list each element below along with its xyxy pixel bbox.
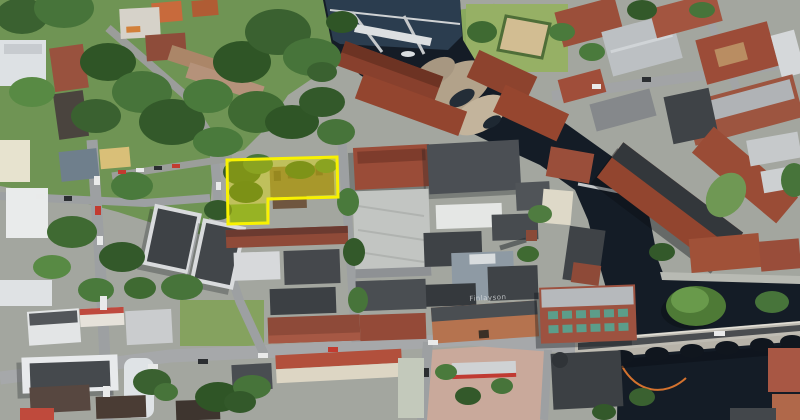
pool-north-brick [759, 238, 800, 271]
teal-window [618, 323, 628, 331]
tree [343, 238, 365, 266]
car [64, 196, 72, 201]
kindergarten-accent [126, 26, 140, 33]
car [148, 364, 158, 369]
car [94, 176, 100, 185]
bridge-arch [680, 344, 704, 358]
parked-car [136, 168, 144, 172]
tree [183, 79, 233, 113]
dark-block-c [283, 249, 340, 285]
factory-block-s [360, 313, 427, 341]
pool-north-brick [689, 233, 762, 273]
bluegray-house [59, 148, 100, 182]
bridge-arch [645, 347, 669, 361]
tree [307, 62, 337, 82]
brown-house [96, 395, 147, 419]
park-diamond [498, 16, 550, 58]
aerial-photo: Finlayson [0, 0, 800, 420]
tree [99, 242, 145, 272]
bridge-arch [715, 341, 739, 355]
tree [154, 383, 178, 401]
tree [755, 291, 789, 313]
car [97, 236, 103, 245]
tree [47, 216, 97, 248]
teal-window [590, 324, 600, 332]
tree [455, 387, 481, 405]
car [258, 353, 268, 358]
teal-building-roof [541, 286, 634, 307]
tree [337, 188, 359, 216]
tree [111, 172, 153, 200]
car [428, 340, 438, 345]
tree [224, 391, 256, 413]
office-sw-roof [30, 361, 111, 390]
dark-block-c [270, 287, 337, 315]
teal-window [576, 310, 586, 318]
tree [649, 243, 675, 261]
teal-window [548, 325, 558, 333]
finlayson-gate [479, 330, 490, 339]
car [328, 347, 338, 352]
se-quay-block [772, 394, 800, 420]
parked-car [118, 170, 126, 174]
yellow-house [99, 147, 131, 170]
teal-window [548, 311, 558, 319]
white-tower-roof [4, 44, 42, 54]
car [216, 182, 221, 190]
bus [100, 296, 107, 310]
tree [348, 287, 368, 313]
factory-blue-arch [469, 254, 495, 265]
tree [161, 274, 203, 300]
car [95, 206, 101, 215]
tree [467, 21, 497, 43]
red-roof-sw [20, 408, 54, 420]
tree [33, 255, 71, 279]
tree [193, 127, 243, 157]
river-island-canopy [671, 287, 709, 313]
tree [9, 77, 55, 107]
apartment-row [125, 309, 173, 345]
car [714, 331, 725, 336]
kindergarten [119, 7, 161, 39]
cream-block-w [0, 140, 30, 182]
white-block-sw [0, 280, 52, 306]
car [36, 194, 44, 199]
tree [124, 277, 156, 299]
plaza-east-street [544, 350, 548, 420]
bus [103, 386, 110, 397]
tree [317, 119, 355, 145]
tree [71, 99, 121, 133]
teal-window [576, 324, 586, 332]
teal-window [590, 310, 600, 318]
se-dark-block [730, 408, 776, 420]
teal-window [604, 323, 614, 331]
tree [549, 23, 575, 41]
west-bank-brick-s [571, 262, 602, 286]
orange-roof-n [191, 0, 218, 17]
tree [689, 2, 715, 18]
car [424, 368, 429, 377]
tree [579, 43, 605, 61]
tree [517, 246, 539, 262]
tree [78, 278, 114, 302]
aerial-scene: Finlayson [0, 0, 800, 420]
pale-green-corner [398, 358, 424, 418]
teal-window [562, 325, 572, 333]
chateau-turret [552, 352, 568, 368]
tree [627, 0, 657, 20]
teal-window [562, 311, 572, 319]
car [642, 77, 651, 82]
dam-foam [401, 51, 415, 57]
tree [326, 11, 358, 33]
tree [629, 388, 655, 406]
teal-window [604, 309, 614, 317]
factory-hall [353, 189, 432, 278]
tree [435, 364, 457, 380]
car [198, 359, 208, 364]
tree [528, 205, 552, 223]
tree [592, 404, 616, 420]
parked-car [172, 164, 180, 168]
parked-car [154, 166, 162, 170]
factory-dark-ne [427, 140, 521, 195]
white-block-c [234, 251, 281, 281]
teal-window [618, 309, 628, 317]
tree [299, 87, 345, 117]
factory-chimney [526, 230, 537, 241]
tree [491, 378, 513, 394]
car [592, 84, 601, 89]
market-plaza [424, 342, 548, 420]
se-brick-block [768, 348, 800, 392]
